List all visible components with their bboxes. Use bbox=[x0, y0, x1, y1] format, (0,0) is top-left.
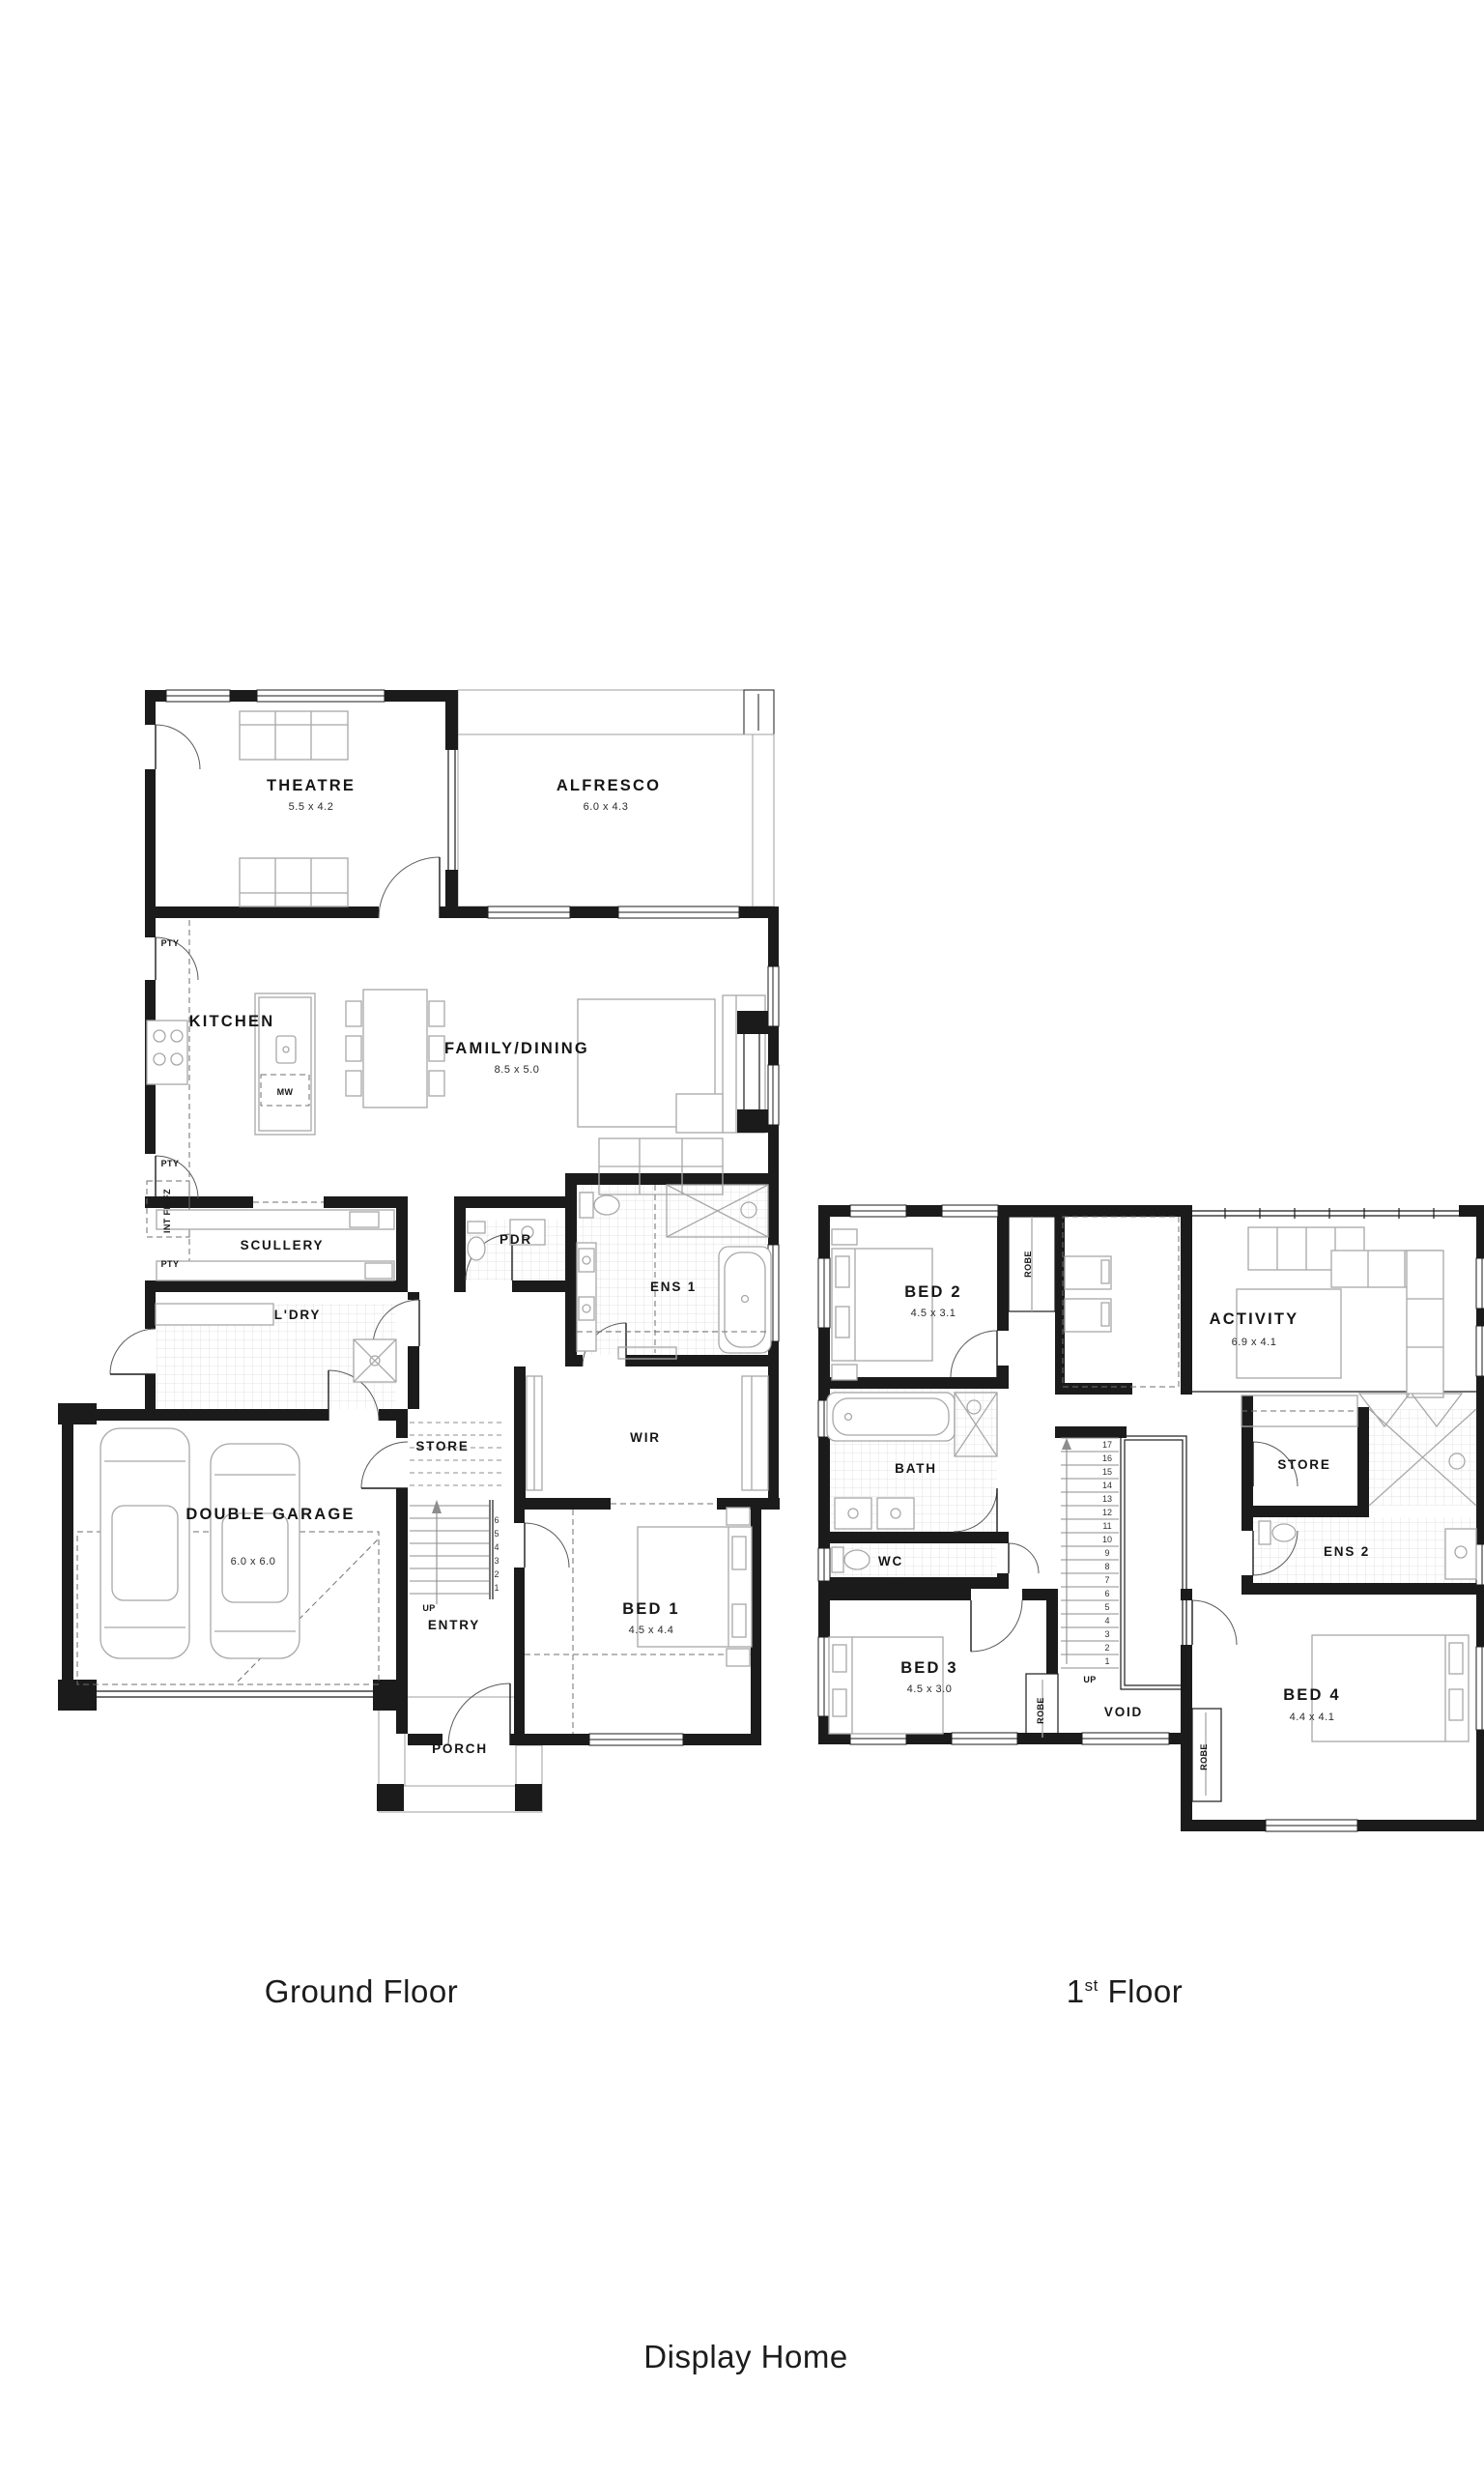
stair-number: 3 bbox=[1104, 1629, 1109, 1639]
stair-number: 7 bbox=[1104, 1575, 1109, 1585]
stair-number: 15 bbox=[1102, 1467, 1112, 1477]
room-label-ens2: ENS 2 bbox=[1324, 1544, 1370, 1559]
room-label-alfresco: ALFRESCO bbox=[556, 777, 661, 794]
room-dims-theatre: 5.5 x 4.2 bbox=[289, 801, 334, 813]
room-label-bed4: BED 4 bbox=[1283, 1686, 1341, 1704]
room-dims-alfresco: 6.0 x 4.3 bbox=[584, 801, 629, 813]
up-label: UP bbox=[1083, 1675, 1096, 1684]
first-floor-stairs: 17 16 15 14 13 12 11 10 9 8 7 6 5 4 3 2 … bbox=[1061, 1436, 1186, 1689]
first-floor-plan: 17 16 15 14 13 12 11 10 9 8 7 6 5 4 3 2 … bbox=[802, 1189, 1484, 1855]
fridge-label: INT FR/FZ bbox=[162, 1189, 172, 1233]
room-label-activity: ACTIVITY bbox=[1210, 1310, 1299, 1328]
stair-number: 4 bbox=[494, 1542, 499, 1552]
stair-number: 1 bbox=[494, 1583, 499, 1593]
room-label-void: VOID bbox=[1104, 1705, 1143, 1719]
room-label-ldry: L'DRY bbox=[274, 1308, 321, 1322]
microwave-label: MW bbox=[277, 1087, 294, 1097]
first-floor-caption-text: Floor bbox=[1099, 1973, 1183, 2009]
first-floor-caption-number: 1 bbox=[1067, 1973, 1085, 2009]
room-label-bed2: BED 2 bbox=[904, 1283, 962, 1301]
up-label: UP bbox=[422, 1603, 435, 1613]
room-label-wc: WC bbox=[878, 1554, 903, 1568]
room-dims-bed2: 4.5 x 3.1 bbox=[911, 1308, 956, 1319]
stair-number: 6 bbox=[1104, 1589, 1109, 1598]
room-label-store2: STORE bbox=[1277, 1457, 1330, 1472]
stair-number: 5 bbox=[494, 1529, 499, 1539]
room-label-kitchen: KITCHEN bbox=[189, 1013, 275, 1030]
stair-number: 9 bbox=[1104, 1548, 1109, 1558]
stair-number: 6 bbox=[494, 1515, 499, 1525]
stair-number: 3 bbox=[494, 1556, 499, 1566]
robe-label: ROBE bbox=[1023, 1251, 1033, 1278]
stair-number: 2 bbox=[494, 1569, 499, 1579]
room-label-store: STORE bbox=[415, 1439, 469, 1453]
room-label-theatre: THEATRE bbox=[267, 777, 356, 794]
pantry-label: PTY bbox=[161, 938, 180, 948]
robe-label: ROBE bbox=[1199, 1743, 1209, 1770]
robe-label: ROBE bbox=[1036, 1697, 1045, 1724]
room-label-ens1: ENS 1 bbox=[650, 1280, 697, 1294]
ground-floor-caption-text: Ground Floor bbox=[265, 1973, 458, 2009]
stair-number: 13 bbox=[1102, 1494, 1112, 1504]
floorplan-page: 6 5 4 3 2 1 THEATRE 5.5 x 4.2 ALFRESCO 6… bbox=[0, 0, 1484, 2474]
room-dims-bed3: 4.5 x 3.0 bbox=[907, 1683, 953, 1695]
room-label-bed3: BED 3 bbox=[900, 1659, 958, 1677]
stair-number: 5 bbox=[1104, 1602, 1109, 1612]
stair-number: 11 bbox=[1102, 1521, 1111, 1531]
footer-caption: Display Home bbox=[553, 2339, 939, 2375]
room-dims-bed4: 4.4 x 4.1 bbox=[1290, 1712, 1335, 1723]
pantry-label: PTY bbox=[161, 1259, 180, 1269]
room-label-family-dining: FAMILY/DINING bbox=[444, 1040, 589, 1057]
room-label-entry: ENTRY bbox=[428, 1618, 480, 1632]
stair-number: 14 bbox=[1102, 1481, 1112, 1490]
first-floor-caption-ordinal: st bbox=[1085, 1976, 1099, 1995]
room-label-scullery: SCULLERY bbox=[241, 1238, 325, 1252]
ground-floor-fixtures bbox=[77, 711, 771, 1734]
first-floor-caption: 1st Floor bbox=[931, 1973, 1318, 2010]
room-dims-garage: 6.0 x 6.0 bbox=[231, 1556, 276, 1568]
room-label-bed1: BED 1 bbox=[622, 1600, 680, 1618]
stair-number: 2 bbox=[1104, 1643, 1109, 1653]
stair-number: 4 bbox=[1104, 1616, 1109, 1625]
room-label-garage: DOUBLE GARAGE bbox=[185, 1506, 355, 1523]
room-dims-activity: 6.9 x 4.1 bbox=[1232, 1337, 1277, 1348]
pantry-label: PTY bbox=[161, 1159, 180, 1168]
stair-number: 12 bbox=[1102, 1508, 1112, 1517]
stair-number: 17 bbox=[1102, 1440, 1112, 1450]
room-label-pdr: PDR bbox=[499, 1232, 532, 1247]
stair-number: 16 bbox=[1102, 1453, 1112, 1463]
stair-number: 10 bbox=[1102, 1535, 1112, 1544]
room-dims-family-dining: 8.5 x 5.0 bbox=[495, 1064, 540, 1076]
ground-floor-caption: Ground Floor bbox=[168, 1973, 555, 2010]
room-label-wir: WIR bbox=[630, 1430, 661, 1445]
room-dims-bed1: 4.5 x 4.4 bbox=[629, 1625, 674, 1636]
ground-floor-plan: 6 5 4 3 2 1 THEATRE 5.5 x 4.2 ALFRESCO 6… bbox=[39, 667, 812, 1836]
footer-caption-text: Display Home bbox=[643, 2339, 847, 2374]
room-label-bath: BATH bbox=[895, 1461, 937, 1476]
stair-number: 8 bbox=[1104, 1562, 1109, 1571]
room-label-porch: PORCH bbox=[432, 1741, 488, 1756]
stair-number: 1 bbox=[1104, 1656, 1109, 1666]
